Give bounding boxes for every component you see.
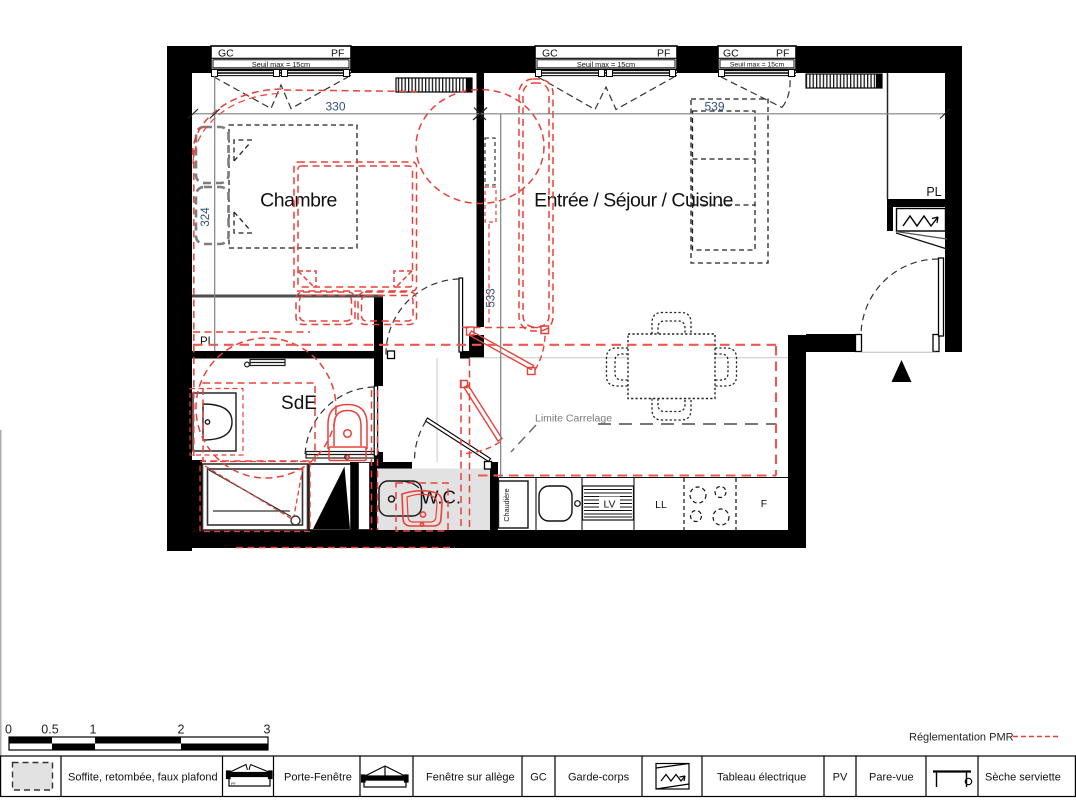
svg-text:PL: PL — [926, 185, 941, 199]
svg-text:PF: PF — [657, 48, 670, 60]
svg-text:Tableau électrique: Tableau électrique — [717, 772, 806, 784]
svg-text:Entrée / Séjour / Cuisine: Entrée / Séjour / Cuisine — [534, 190, 733, 212]
svg-text:2: 2 — [178, 723, 185, 737]
svg-text:Limite Carrelage: Limite Carrelage — [535, 413, 612, 425]
svg-text:324: 324 — [200, 207, 212, 227]
svg-text:Réglementation PMR: Réglementation PMR — [909, 732, 1014, 744]
svg-text:LL: LL — [655, 499, 667, 511]
svg-text:0.5: 0.5 — [41, 723, 58, 737]
svg-text:PV: PV — [833, 772, 848, 784]
svg-text:GC: GC — [218, 48, 234, 60]
svg-text:Chaudière: Chaudière — [502, 488, 511, 521]
svg-text:Sèche serviette: Sèche serviette — [985, 772, 1061, 784]
svg-text:LV: LV — [603, 499, 615, 511]
svg-text:3: 3 — [264, 723, 271, 737]
svg-text:0: 0 — [5, 723, 12, 737]
svg-text:Fenêtre sur allège: Fenêtre sur allège — [426, 772, 515, 784]
svg-text:Soffite, retombée, faux plafon: Soffite, retombée, faux plafond — [68, 772, 218, 784]
svg-text:Pare-vue: Pare-vue — [869, 772, 914, 784]
svg-text:533: 533 — [486, 288, 498, 307]
svg-text:SdE: SdE — [281, 393, 317, 414]
svg-text:PF: PF — [331, 48, 344, 60]
svg-text:Garde-corps: Garde-corps — [568, 772, 630, 784]
svg-text:F: F — [761, 498, 767, 510]
svg-text:GC: GC — [723, 48, 739, 60]
svg-text:PL: PL — [200, 336, 215, 348]
svg-text:Seuil max = 15cm: Seuil max = 15cm — [577, 60, 635, 69]
svg-text:Seuil max = 15cm: Seuil max = 15cm — [730, 62, 785, 69]
svg-text:PF: PF — [231, 782, 237, 786]
svg-text:GC: GC — [530, 772, 547, 784]
svg-text:1: 1 — [90, 723, 97, 737]
svg-text:330: 330 — [325, 100, 345, 114]
svg-text:Porte-Fenêtre: Porte-Fenêtre — [284, 772, 352, 784]
svg-text:GC: GC — [542, 48, 558, 60]
svg-text:Seuil max = 15cm: Seuil max = 15cm — [252, 60, 310, 69]
svg-text:539: 539 — [704, 100, 724, 114]
svg-text:PF: PF — [776, 48, 789, 60]
